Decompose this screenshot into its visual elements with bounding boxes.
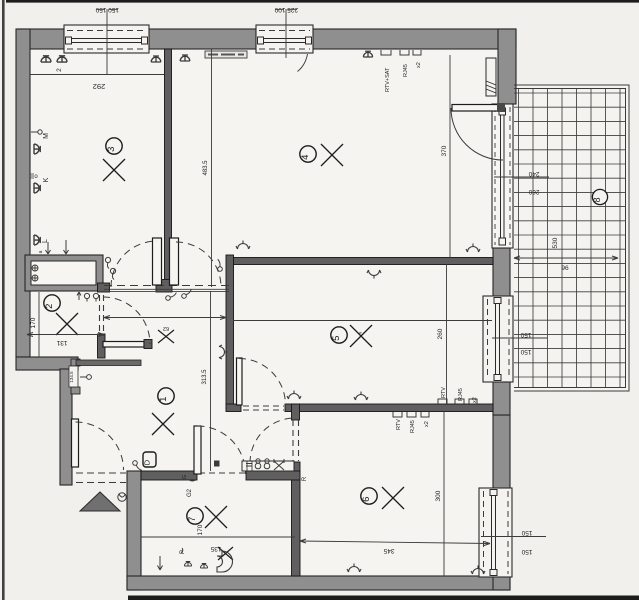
svg-text:K: K [43,177,50,182]
svg-text:7: 7 [187,517,198,522]
svg-text:240: 240 [528,170,539,177]
svg-text:2: 2 [56,68,63,72]
svg-text:6: 6 [361,497,372,502]
svg-text:150: 150 [520,348,531,355]
svg-text:M: M [43,133,50,139]
svg-text:R: R [302,476,308,481]
svg-text:P: P [180,550,186,554]
svg-text:a: a [38,250,44,253]
svg-text:5: 5 [331,336,342,341]
svg-text:170: 170 [30,317,37,328]
svg-text:x2: x2 [416,62,422,68]
svg-text:RTV: RTV [441,387,447,398]
svg-text:345: 345 [383,547,394,554]
svg-text:RTV+SAT: RTV+SAT [385,67,391,92]
svg-text:170: 170 [197,524,204,535]
svg-text:150: 150 [521,548,532,555]
svg-text:300: 300 [435,490,442,501]
svg-text:150: 150 [521,529,532,536]
svg-text:G: G [182,475,188,479]
svg-text:131: 131 [56,339,67,346]
svg-text:313.5: 313.5 [202,369,208,385]
svg-text:96: 96 [561,264,569,271]
svg-text:62: 62 [163,325,169,331]
svg-text:RJ45: RJ45 [403,64,409,77]
svg-text:134.5: 134.5 [69,371,74,383]
svg-text:D: D [143,459,152,465]
svg-text:292: 292 [93,82,106,91]
svg-text:3: 3 [106,147,117,152]
svg-text:260: 260 [437,328,444,339]
svg-text:4: 4 [300,155,311,160]
svg-text:RTV: RTV [396,419,402,430]
svg-text:260: 260 [528,188,539,195]
svg-text:530: 530 [552,237,559,248]
svg-text:x2: x2 [424,421,430,427]
svg-text:G2: G2 [187,488,193,497]
svg-text:8: 8 [592,197,602,202]
svg-text:2: 2 [44,304,55,309]
svg-text:483.5: 483.5 [203,160,209,176]
svg-text:1: 1 [158,397,169,402]
svg-text:RJ45: RJ45 [458,388,464,401]
svg-text:370: 370 [441,145,448,156]
svg-text:x2: x2 [472,397,478,403]
svg-text:RJ45: RJ45 [410,420,416,433]
